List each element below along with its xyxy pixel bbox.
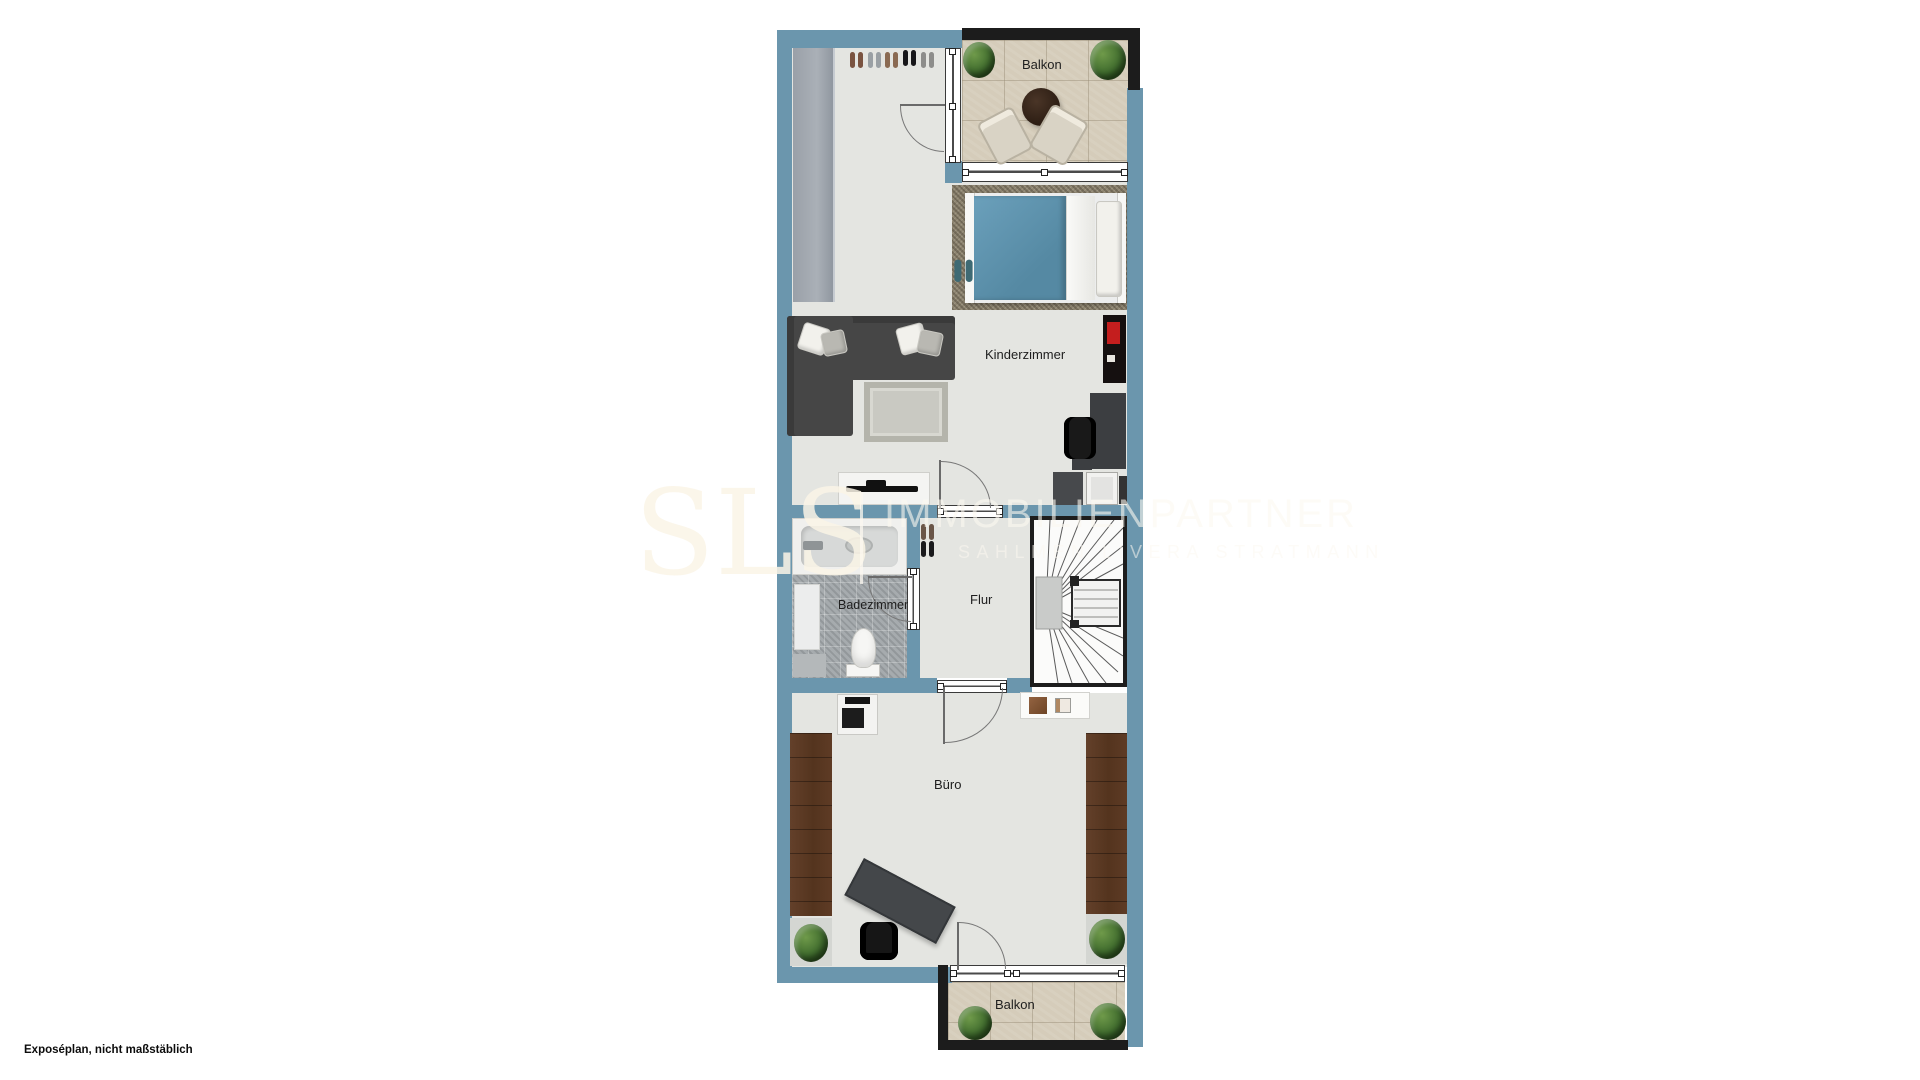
shoes: [921, 52, 934, 69]
sideboard-item: [1029, 697, 1047, 714]
wall-buero-bottom: [777, 967, 952, 983]
plant: [1090, 40, 1126, 80]
shoes: [921, 541, 934, 558]
watermark-brand: IMMOBILIENPARTNER: [884, 492, 1358, 537]
room-label-balkon-top: Balkon: [1022, 57, 1062, 72]
wall-buero-top: [792, 678, 937, 693]
bed-blanket: [974, 196, 1066, 300]
shoes: [903, 50, 916, 67]
wood-panel-right: [1086, 733, 1127, 921]
page: { "caption": "Exposéplan, nicht maßstäbl…: [0, 0, 1920, 1080]
wood-panel-left: [790, 733, 832, 916]
shelf-item: [1107, 355, 1115, 362]
kinderzimmer-window-band: [962, 162, 1128, 182]
printer: [837, 694, 878, 735]
wardrobe: [793, 48, 835, 302]
wall-balcony-door-stub: [945, 161, 962, 183]
area-rug: [864, 382, 948, 442]
toilet-bowl: [851, 628, 876, 668]
floor-plan: Balkon Kinderzimmer Badezimmer Flur Büro…: [0, 0, 1920, 1080]
shelf-books-red: [1107, 322, 1120, 344]
plant: [1090, 1003, 1126, 1040]
sofa-pillow: [916, 329, 944, 357]
plant: [958, 1006, 992, 1040]
slippers: [954, 260, 972, 284]
watermark-subtitle: SAHLMEN LIVERA STRATMANN: [958, 542, 1385, 563]
wall-buero-top-stub: [1007, 678, 1032, 693]
room-label-flur: Flur: [970, 592, 992, 607]
plant: [963, 42, 995, 78]
shoes: [868, 52, 881, 69]
wall-right: [1127, 88, 1143, 1047]
sideboard: [1020, 692, 1090, 719]
balkon-bottom-outer-wall: [938, 1040, 1128, 1050]
desk-chair: [1064, 417, 1096, 459]
shoes: [850, 52, 863, 69]
plan-caption: Exposéplan, nicht maßstäblich: [24, 1044, 193, 1056]
sideboard-item: [1055, 698, 1071, 713]
sofa-pillow: [820, 329, 848, 357]
bed-pillow: [1096, 201, 1122, 297]
watermark-logo: SLS: [634, 474, 874, 592]
bed-sheet-fold: [1066, 196, 1095, 300]
balkon-bottom-left-wall: [938, 965, 948, 1048]
office-chair: [860, 922, 898, 960]
wall-shelf: [1103, 315, 1126, 383]
bath-mat: [793, 654, 826, 677]
room-label-buero: Büro: [934, 777, 961, 792]
balkon-top-door-band: [945, 48, 961, 163]
watermark-divider: [860, 492, 863, 584]
balkon-top-outer-wall: [962, 28, 1140, 40]
balkon-top-right-wall: [1128, 28, 1140, 90]
plant: [794, 924, 828, 962]
room-label-balkon-bottom: Balkon: [995, 997, 1035, 1012]
shoes: [885, 52, 898, 69]
plant: [1089, 919, 1125, 959]
wall-bath-flur-bottom: [907, 630, 920, 678]
wall-top: [777, 30, 962, 48]
room-label-kinderzimmer: Kinderzimmer: [985, 347, 1065, 362]
